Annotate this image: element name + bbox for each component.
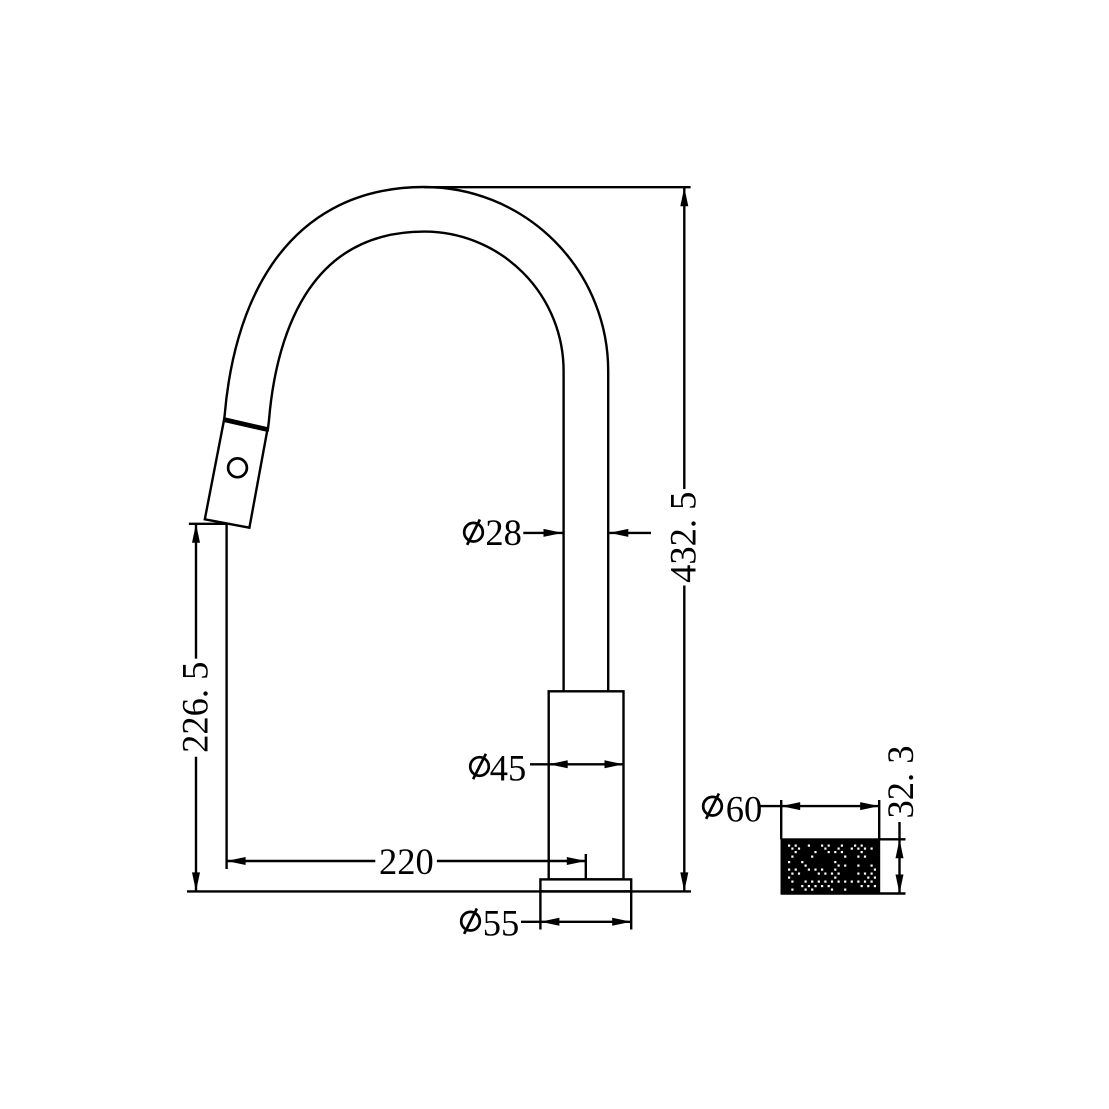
svg-text:45: 45 [490, 748, 527, 789]
svg-text:55: 55 [483, 903, 520, 944]
svg-text:226. 5: 226. 5 [175, 662, 216, 753]
svg-text:28: 28 [485, 512, 522, 553]
svg-text:432. 5: 432. 5 [663, 492, 704, 583]
svg-text:32. 3: 32. 3 [880, 746, 921, 819]
svg-text:220: 220 [379, 841, 434, 882]
svg-text:60: 60 [726, 789, 763, 830]
